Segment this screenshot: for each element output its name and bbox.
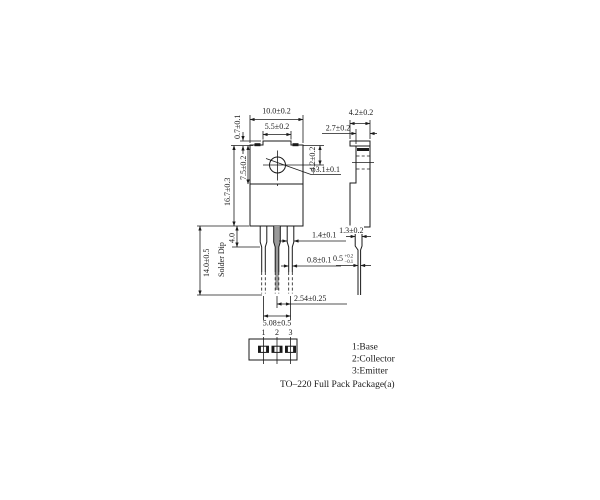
shoulder-notch-right bbox=[293, 143, 299, 146]
pin-legend: 1:Base 2:Collector 3:Emitter bbox=[352, 343, 396, 377]
dim-plateau-height: 0.7±0.1 bbox=[233, 115, 242, 139]
legend-base: 1:Base bbox=[352, 343, 378, 353]
lead-1 bbox=[260, 226, 267, 272]
dim-lead-narrow: 0.8±0.1 bbox=[307, 256, 331, 265]
pin-label-1: 1 bbox=[262, 328, 266, 337]
package-drawing-page: 10.0±0.2 5.5±0.2 0.7±0.1 16.7±0.3 7.5±0.… bbox=[0, 0, 600, 500]
lead-3 bbox=[287, 226, 294, 272]
legend-collector: 2:Collector bbox=[352, 355, 396, 365]
dim-lead-pitch: 2.54±0.25 bbox=[294, 294, 326, 303]
side-inner-bar bbox=[357, 148, 369, 151]
dim-side-body: 2.7±0.2 bbox=[326, 124, 350, 133]
dim-front-width: 10.0±0.2 bbox=[262, 107, 290, 116]
dim-lead-exit: 1.3±0.2 bbox=[339, 226, 363, 235]
shoulder-notch-left bbox=[255, 143, 261, 146]
dim-lead-thickness: 0.5 +0.2 −0.1 bbox=[333, 251, 355, 266]
collector-lead-fill bbox=[274, 226, 281, 290]
dim-lead-shoulder: 4.0 bbox=[228, 233, 237, 243]
dim-side-thickness: 4.2±0.2 bbox=[349, 108, 373, 117]
legend-emitter: 3:Emitter bbox=[352, 367, 389, 377]
dim-lead-length: 14.0±0.5 bbox=[202, 249, 211, 277]
dim-plateau-width: 5.5±0.2 bbox=[265, 122, 289, 131]
technical-drawing: 10.0±0.2 5.5±0.2 0.7±0.1 16.7±0.3 7.5±0.… bbox=[0, 0, 600, 500]
front-leads bbox=[260, 226, 294, 294]
dim-lead-wide: 1.4±0.1 bbox=[312, 231, 336, 240]
package-caption: TO–220 Full Pack Package(a) bbox=[280, 379, 395, 390]
bottom-view: 1 2 3 bbox=[249, 328, 297, 364]
hole-leader-line bbox=[266, 159, 311, 175]
solder-dip-label: Solder Dip bbox=[217, 242, 226, 277]
dim-body-height: 16.7±0.3 bbox=[223, 178, 232, 206]
dim-tab-height: 7.5±0.2 bbox=[239, 156, 248, 180]
side-lead bbox=[355, 227, 362, 295]
dim-hole-diameter: φ3.1±0.1 bbox=[311, 165, 340, 174]
side-view bbox=[350, 141, 374, 295]
front-dimensions: 10.0±0.2 5.5±0.2 0.7±0.1 16.7±0.3 7.5±0.… bbox=[197, 107, 340, 227]
dim-lead-span: 5.08±0.5 bbox=[263, 319, 291, 328]
pin-label-3: 3 bbox=[289, 328, 293, 337]
lead-dimensions: 1.4±0.1 0.8±0.1 2.54±0.25 5.08±0.5 14.0±… bbox=[197, 226, 347, 328]
pin-label-2: 2 bbox=[275, 328, 279, 337]
front-view bbox=[250, 141, 341, 226]
side-outline bbox=[350, 146, 370, 227]
side-top-cap bbox=[350, 141, 370, 146]
